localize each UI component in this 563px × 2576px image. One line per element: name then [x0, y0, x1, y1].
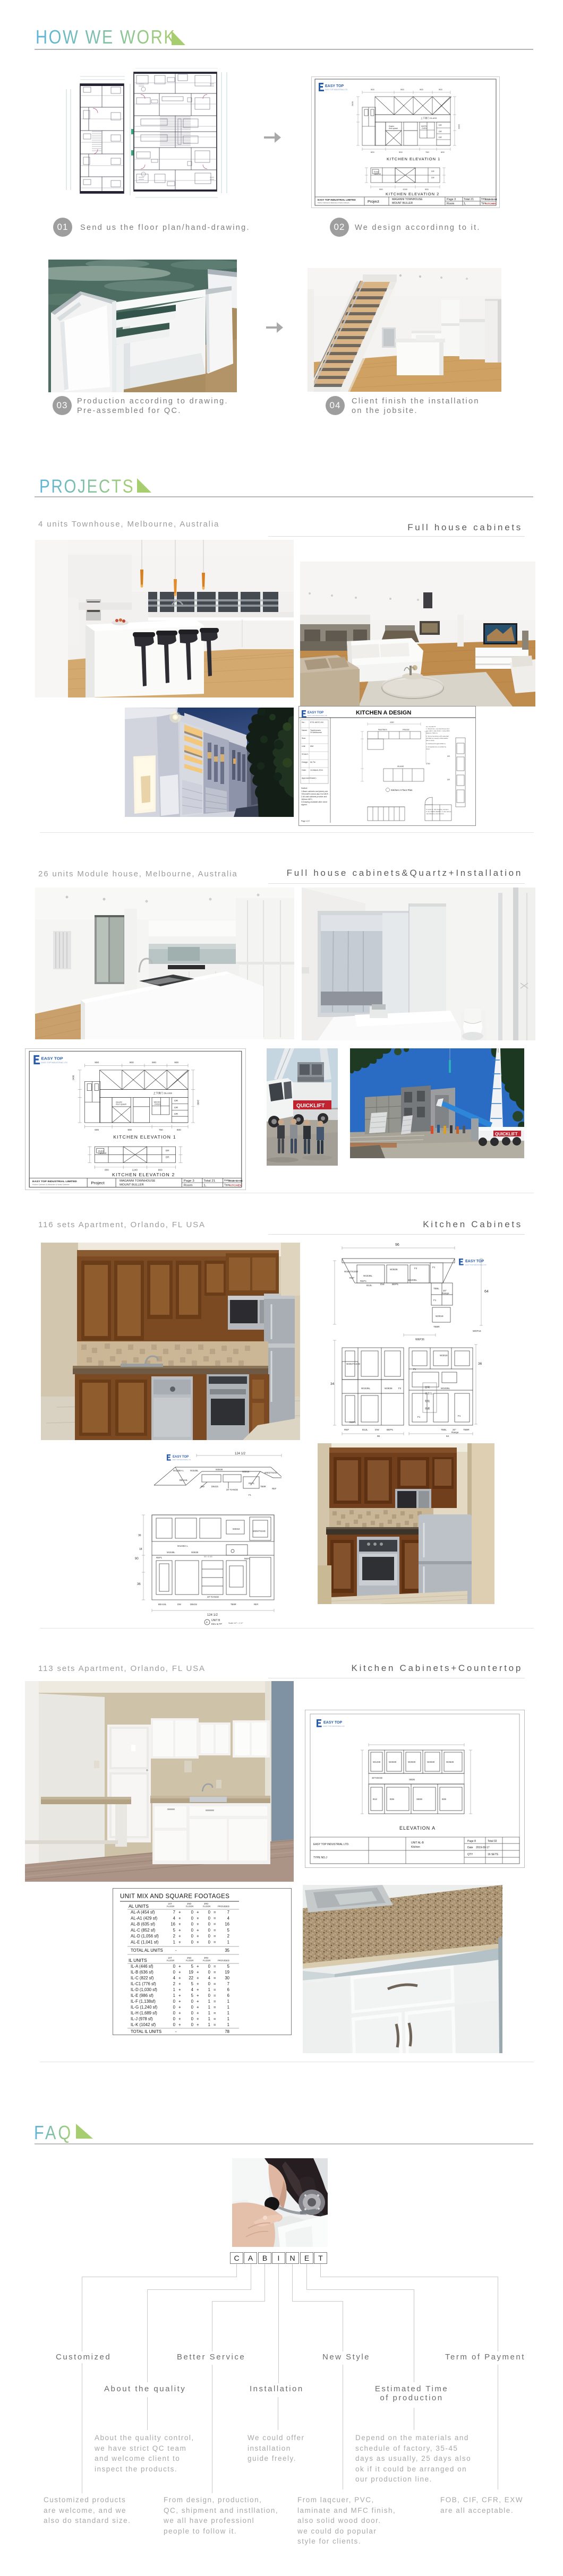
svg-text:client;: client; — [426, 748, 430, 750]
svg-text:TB9R: TB9R — [231, 1603, 236, 1606]
svg-text:4: 4 — [173, 1916, 176, 1920]
svg-text:SB36: SB36 — [416, 1798, 423, 1800]
svg-text:balance 740mm;: balance 740mm; — [426, 732, 438, 734]
svg-text:DR: DR — [439, 136, 442, 139]
svg-text:IL-B (636 sf): IL-B (636 sf) — [131, 1970, 153, 1975]
svg-text:=: = — [214, 1922, 216, 1927]
svg-text:14-March-2011: 14-March-2011 — [310, 769, 323, 771]
svg-text:+: + — [178, 1910, 181, 1915]
svg-text:EASY TOP INDUSTRIAL LTD: EASY TOP INDUSTRIAL LTD — [325, 89, 348, 91]
svg-text:124 1/2: 124 1/2 — [207, 1614, 218, 1617]
svg-text:760: 760 — [159, 1128, 163, 1131]
svg-text:DW: DW — [201, 1485, 204, 1488]
svg-text:124 1/2: 124 1/2 — [235, 1452, 246, 1455]
svg-text:ISLAND: ISLAND — [397, 765, 404, 768]
svg-text:18: 18 — [139, 1548, 142, 1551]
svg-text:Kitchen Cabinets & Wardrobe &: Kitchen Cabinets & Wardrobe & Vanity Cab… — [318, 202, 349, 204]
svg-text:W1536L: W1536L — [190, 1469, 199, 1472]
svg-text:900: 900 — [158, 1169, 163, 1171]
svg-text:19: 19 — [189, 1970, 193, 1975]
svg-text:Mr.Tie: Mr.Tie — [310, 761, 315, 763]
svg-text:1: 1 — [208, 1999, 210, 2004]
svg-text:1: 1 — [227, 1999, 229, 2004]
svg-text:+: + — [178, 1981, 181, 1986]
svg-text:W3018: W3018 — [440, 1354, 448, 1357]
svg-text:0: 0 — [191, 2017, 194, 2021]
svg-text:-: - — [175, 1948, 177, 1953]
svg-text:0: 0 — [191, 1940, 194, 1945]
svg-text:4300: 4300 — [390, 721, 394, 723]
svg-text:≡≡ -≡ ≡≡: ≡≡ -≡ ≡≡ — [204, 1555, 212, 1558]
svg-text:KITCHEN A DESIGN: KITCHEN A DESIGN — [356, 710, 411, 716]
svg-text:+: + — [178, 1934, 181, 1939]
svg-text:W1536L: W1536L — [363, 1274, 373, 1277]
svg-text:BEA24L: BEA24L — [180, 1479, 188, 1481]
svg-text:0: 0 — [191, 1910, 194, 1915]
svg-text:160mm MFC;: 160mm MFC; — [301, 798, 313, 800]
svg-text:另存为...: 另存为... — [425, 1392, 434, 1395]
svg-text:REP1: REP1 — [249, 1482, 255, 1485]
svg-text:900: 900 — [400, 88, 404, 91]
svg-text:MM: MM — [310, 745, 313, 747]
svg-text:0: 0 — [208, 1981, 211, 1986]
svg-text:30: 30 — [225, 1976, 229, 1980]
svg-text:Page 8: Page 8 — [467, 1840, 476, 1843]
svg-text:2019-09-17: 2019-09-17 — [476, 1846, 490, 1849]
svg-text:UNIT B: UNIT B — [211, 1619, 220, 1622]
svg-text:1240: 1240 — [403, 188, 408, 191]
svg-text:Page 3: Page 3 — [184, 1179, 195, 1183]
svg-text:16: 16 — [170, 1922, 175, 1927]
svg-text:0: 0 — [208, 1964, 211, 1969]
svg-text:IL-G (1,240 sf): IL-G (1,240 sf) — [131, 2005, 158, 2010]
svg-text:600: 600 — [371, 151, 374, 153]
svg-text:0: 0 — [208, 1993, 211, 1998]
svg-text:30"HOOD: 30"HOOD — [372, 1777, 383, 1779]
svg-text:W3636: W3636 — [191, 1551, 199, 1554]
svg-text:W3018: W3018 — [242, 1470, 250, 1473]
svg-text:上下滑门 GLASS: 上下滑门 GLASS — [421, 116, 437, 119]
svg-text:3.Drawing available after clie: 3.Drawing available after client — [301, 801, 327, 803]
svg-text:Kitchen A Floor Plan: Kitchen A Floor Plan — [391, 789, 413, 791]
svg-text:0: 0 — [208, 1928, 211, 1933]
svg-text:Page 3: Page 3 — [447, 198, 456, 201]
svg-text:+: + — [197, 1987, 199, 1992]
svg-text:Project: Project — [91, 1181, 105, 1186]
svg-text:1: 1 — [227, 2011, 229, 2015]
svg-text:0: 0 — [191, 2011, 194, 2015]
svg-text:W1836L: W1836L — [408, 1279, 417, 1281]
svg-text:Elev & FP: Elev & FP — [211, 1623, 222, 1625]
svg-text:Size:: Size: — [302, 737, 306, 739]
svg-text:4: 4 — [191, 1987, 194, 1992]
svg-text:Date: Date — [467, 1846, 473, 1849]
svg-text:EASY TOP INDUSTRIAL LIMITED: EASY TOP INDUSTRIAL LIMITED — [318, 199, 356, 201]
svg-text:W3030: W3030 — [389, 1761, 397, 1763]
svg-text:MAGANNI TOWNHOUSE: MAGANNI TOWNHOUSE — [392, 198, 423, 201]
svg-text:+: + — [178, 2017, 181, 2021]
svg-text:MOUNT BULLER: MOUNT BULLER — [120, 1184, 144, 1187]
svg-text:EASY TOP INDUSTRIAL LTD: EASY TOP INDUSTRIAL LTD — [465, 1264, 487, 1266]
svg-text:REP1: REP1 — [156, 1556, 163, 1559]
svg-text:next splash: next splash — [116, 1104, 126, 1106]
svg-text:20" RANGE: 20" RANGE — [226, 1488, 238, 1491]
svg-text:=: = — [214, 1970, 216, 1975]
svg-text:0: 0 — [208, 1940, 211, 1945]
svg-text:1: 1 — [208, 1987, 210, 1992]
svg-text:0: 0 — [208, 1916, 211, 1920]
svg-text:QUICKLIFT: QUICKLIFT — [495, 1132, 518, 1136]
svg-text:F2: F2 — [414, 1267, 417, 1270]
svg-text:+: + — [197, 1993, 199, 1998]
svg-text:1: 1 — [173, 1940, 175, 1945]
svg-text:BEP5: BEP5 — [392, 1283, 398, 1286]
svg-text:+: + — [178, 1928, 181, 1933]
svg-text:B12L: B12L — [362, 1428, 368, 1431]
svg-text:W1836L: W1836L — [441, 1387, 450, 1390]
svg-text:KITCHEN ELEVATION 1: KITCHEN ELEVATION 1 — [113, 1134, 176, 1140]
svg-text:Page 1/17: Page 1/17 — [301, 820, 310, 822]
svg-text:W3030: W3030 — [408, 1761, 416, 1763]
svg-text:KITCHEN: KITCHEN — [485, 202, 497, 205]
svg-text:+: + — [197, 1910, 199, 1915]
svg-text:FLOOR: FLOOR — [167, 1959, 174, 1962]
svg-text:=: = — [214, 1987, 216, 1992]
svg-text:REF.: REF. — [254, 1603, 259, 1606]
svg-text:900: 900 — [399, 151, 403, 153]
svg-text:=: = — [214, 1964, 216, 1969]
svg-text:64: 64 — [484, 1290, 489, 1294]
svg-text:5: 5 — [227, 1964, 230, 1969]
svg-text:Room: Room — [447, 202, 455, 205]
svg-text:PROVIDED: PROVIDED — [218, 1959, 229, 1962]
svg-text:96: 96 — [377, 1435, 380, 1437]
svg-text:F1: F1 — [458, 1415, 461, 1417]
svg-text:+: + — [178, 1940, 181, 1945]
svg-text:1: 1 — [227, 2017, 229, 2021]
svg-text:cabinet: cabinet — [98, 1152, 107, 1155]
svg-text:FRIDGE: FRIDGE — [403, 729, 410, 731]
svg-text:0: 0 — [173, 2005, 176, 2010]
svg-text:=: = — [214, 2017, 216, 2021]
svg-text:+: + — [197, 1999, 199, 2004]
svg-text:+: + — [197, 2022, 199, 2027]
svg-text:900: 900 — [105, 1169, 109, 1171]
svg-text:EASY TOP: EASY TOP — [173, 1455, 189, 1459]
svg-text:=: = — [214, 1934, 216, 1939]
svg-text:0: 0 — [208, 1910, 211, 1915]
svg-text:W1230: W1230 — [373, 1761, 381, 1763]
svg-text:DR: DR — [174, 1106, 178, 1109]
svg-text:EASY TOP INDUSTRIAL LTD: EASY TOP INDUSTRIAL LTD — [308, 714, 327, 717]
svg-text:=: = — [214, 1928, 216, 1933]
svg-text:Of Melbourne: Of Melbourne — [310, 731, 322, 734]
svg-text:PANTRIES: PANTRIES — [378, 729, 387, 731]
svg-text:Scale 1/2" = 1'-0": Scale 1/2" = 1'-0" — [228, 1622, 243, 1624]
svg-text:复制: 复制 — [425, 1385, 430, 1389]
svg-text:Name:: Name: — [302, 729, 308, 731]
svg-text:5: 5 — [191, 1981, 194, 1986]
svg-text:TB9L: TB9L — [433, 1287, 439, 1290]
svg-text:manufacture commences.: manufacture commences. — [426, 813, 445, 815]
svg-text:收藏: 收藏 — [425, 1407, 430, 1410]
svg-text:Kitchen: Kitchen — [411, 1846, 420, 1849]
svg-text:35: 35 — [225, 1948, 229, 1953]
svg-text:1240: 1240 — [132, 1169, 138, 1171]
svg-text:W3018: W3018 — [436, 1315, 443, 1317]
svg-text:+: + — [197, 1916, 199, 1920]
svg-text:EASY TOP: EASY TOP — [323, 1721, 342, 1725]
svg-text:1: 1 — [227, 1940, 229, 1945]
svg-text:=: = — [214, 2022, 216, 2027]
svg-text:DB415: DB415 — [190, 1603, 197, 1606]
svg-text:2400: 2400 — [72, 1075, 74, 1080]
svg-text:0: 0 — [191, 1999, 194, 2004]
svg-text:AL-A1 (429 sf): AL-A1 (429 sf) — [131, 1916, 158, 1920]
svg-text:F2: F2 — [398, 1387, 402, 1390]
svg-text:0: 0 — [208, 1970, 211, 1975]
svg-text:TYPE NO.J: TYPE NO.J — [313, 1856, 327, 1859]
svg-text:+: + — [178, 1922, 181, 1927]
svg-text:SB36: SB36 — [409, 1778, 415, 1781]
svg-text:F1: F1 — [432, 1266, 436, 1269]
svg-text:+: + — [197, 1928, 199, 1933]
svg-text:900: 900 — [127, 1128, 132, 1131]
svg-text:600: 600 — [441, 151, 445, 153]
svg-text:FLOOR: FLOOR — [186, 1959, 193, 1962]
svg-text:IL-D (1,030 sf): IL-D (1,030 sf) — [131, 1987, 157, 1992]
svg-text:=: = — [214, 2005, 216, 2010]
svg-text:=: = — [214, 1976, 216, 1980]
svg-text:ELEVATION A: ELEVATION A — [399, 1825, 436, 1831]
svg-text:2: 2 — [227, 1934, 229, 1939]
svg-text:Project: Project — [368, 200, 379, 204]
svg-text:EASY TOP INDUSTRIAL LTD: EASY TOP INDUSTRIAL LTD — [41, 1062, 67, 1064]
svg-text:900: 900 — [420, 88, 423, 91]
svg-text:20" RANGE: 20" RANGE — [207, 1596, 219, 1598]
svg-text:1,: 1, — [203, 1184, 207, 1187]
svg-text:+: + — [178, 2011, 181, 2015]
svg-text:Range: Range — [442, 1292, 449, 1295]
svg-text:900: 900 — [379, 188, 383, 191]
svg-text:Approved:: Approved: — [302, 777, 310, 779]
svg-text:FLOOR: FLOOR — [203, 1905, 210, 1908]
svg-text:1: 1 — [227, 2022, 229, 2027]
svg-text:+: + — [197, 1940, 199, 1945]
svg-text:TB9R: TB9R — [260, 1485, 266, 1488]
svg-text:TB9R: TB9R — [463, 1428, 470, 1431]
svg-text:F1: F1 — [249, 1494, 252, 1496]
svg-text:EASY TOP INDUSTRIAL LTD: EASY TOP INDUSTRIAL LTD — [323, 1725, 345, 1727]
svg-text:Kitchen Cabinets & Wardrobe &: Kitchen Cabinets & Wardrobe & Vanity Cab… — [32, 1183, 70, 1185]
svg-text:5: 5 — [227, 1928, 230, 1933]
svg-text:+: + — [178, 2005, 181, 2010]
svg-text:1: 1 — [173, 1987, 175, 1992]
svg-text:0: 0 — [191, 2022, 194, 2027]
svg-text:0: 0 — [173, 2011, 176, 2015]
svg-text:=: = — [214, 1999, 216, 2004]
svg-text:4: 4 — [173, 1976, 176, 1980]
svg-text:B36: B36 — [390, 1798, 395, 1800]
svg-text:+: + — [178, 1970, 181, 1975]
svg-text:WDF16: WDF16 — [473, 1330, 481, 1332]
svg-text:ETD-1607C-KK: ETD-1607C-KK — [310, 721, 324, 723]
svg-text:Room: Room — [184, 1184, 193, 1187]
svg-text:=: = — [214, 1993, 216, 1998]
svg-text:SCALE:: SCALE: — [302, 753, 309, 755]
svg-text:6: 6 — [227, 1987, 229, 1992]
svg-text:36: 36 — [137, 1583, 141, 1586]
svg-text:KITCHEN ELEVATION 1: KITCHEN ELEVATION 1 — [387, 157, 440, 161]
svg-text:DR: DR — [166, 1149, 170, 1152]
svg-text:TOTAL IL UNITS: TOTAL IL UNITS — [131, 2029, 161, 2034]
svg-text:=: = — [214, 1910, 216, 1915]
svg-text:64: 64 — [446, 1435, 449, 1437]
svg-text:KITCHEN: KITCHEN — [229, 1184, 242, 1187]
svg-text:+: + — [197, 1970, 199, 1975]
svg-text:5: 5 — [191, 1993, 194, 1998]
svg-text:0: 0 — [191, 1928, 194, 1933]
svg-text:OVEN: OVEN — [422, 127, 427, 130]
svg-text:B36: B36 — [442, 1798, 447, 1800]
svg-text:next splash: next splash — [389, 127, 398, 130]
svg-text:+: + — [197, 1934, 199, 1939]
svg-text:DR: DR — [174, 1113, 178, 1115]
svg-text:UNIT AL-B: UNIT AL-B — [411, 1841, 424, 1845]
svg-text:0: 0 — [191, 1934, 194, 1939]
svg-text:cabinet: cabinet — [374, 173, 381, 175]
svg-text:W3630: W3630 — [446, 1761, 454, 1763]
svg-text:上下滑门 GLASS: 上下滑门 GLASS — [153, 1091, 172, 1095]
svg-text:EASY TOP INDUSTRIAL LIMITED: EASY TOP INDUSTRIAL LIMITED — [32, 1180, 77, 1183]
svg-text:0: 0 — [208, 1922, 211, 1927]
svg-text:OVEN: OVEN — [155, 1104, 161, 1106]
svg-text:REP1: REP1 — [244, 1557, 251, 1560]
svg-text:REF: REF — [344, 1428, 349, 1431]
svg-text:W3027X24D: W3027X24D — [346, 1363, 361, 1365]
svg-text:EASY TOP: EASY TOP — [41, 1056, 63, 1061]
svg-text:900: 900 — [130, 1061, 134, 1064]
svg-text:19: 19 — [225, 1970, 229, 1975]
svg-text:Total 21: Total 21 — [464, 198, 474, 201]
svg-text:2400: 2400 — [458, 124, 460, 130]
svg-text:IL-F (1,138sf): IL-F (1,138sf) — [131, 1999, 156, 2004]
svg-text:1.Base cabinets and joinery ar: 1.Base cabinets and joinery are — [301, 790, 328, 792]
svg-text:FLOOR: FLOOR — [167, 1905, 174, 1908]
svg-text:EASY TOP: EASY TOP — [325, 84, 344, 88]
svg-text:W1536L: W1536L — [167, 1551, 175, 1554]
svg-text:+: + — [197, 2005, 199, 2010]
svg-text:-: - — [175, 2029, 177, 2034]
svg-text:AL-D (1,056 sf): AL-D (1,056 sf) — [131, 1934, 159, 1939]
svg-text:AL-A (454 sf): AL-A (454 sf) — [131, 1910, 155, 1915]
svg-text:+: + — [197, 2017, 199, 2021]
svg-text:EASY TOP INDUSTRIAL LTD.: EASY TOP INDUSTRIAL LTD. — [313, 1843, 349, 1846]
svg-text:W3636: W3636 — [390, 1268, 398, 1271]
svg-text:+: + — [178, 1999, 181, 2004]
svg-text:40mm thick:: 40mm thick: — [426, 739, 434, 742]
svg-text:AL UNITS: AL UNITS — [129, 1903, 149, 1909]
svg-text:F1: F1 — [417, 1416, 421, 1418]
svg-text:MAGANNI TOWNHOUSE: MAGANNI TOWNHOUSE — [120, 1179, 156, 1183]
svg-text:DR: DR — [431, 176, 434, 179]
svg-text:W3027X24D: W3027X24D — [265, 1471, 277, 1474]
svg-text:=: = — [214, 1981, 216, 1986]
svg-text:David L: David L — [310, 777, 317, 779]
svg-text:2400: 2400 — [351, 101, 354, 106]
svg-text:DW: DW — [177, 1603, 181, 1606]
svg-text:2: 2 — [173, 1934, 175, 1939]
svg-text:W3636: W3636 — [385, 1387, 393, 1390]
svg-text:AL-E (1,041 sf): AL-E (1,041 sf) — [131, 1940, 159, 1945]
svg-text:Date:: Date: — [302, 769, 306, 771]
svg-text:DB415: DB415 — [211, 1485, 218, 1488]
svg-text:DR: DR — [166, 1156, 170, 1159]
svg-text:W1536L: W1536L — [361, 1387, 371, 1390]
svg-text:36: 36 — [138, 1534, 141, 1537]
svg-text:=: = — [214, 2011, 216, 2015]
svg-text:TOTAL AL UNITS: TOTAL AL UNITS — [131, 1948, 163, 1953]
svg-text:TB9R: TB9R — [433, 1325, 440, 1328]
svg-text:Range: Range — [451, 1431, 459, 1434]
svg-text:1: 1 — [208, 2017, 210, 2021]
svg-text:KITCHEN ELEVATION 2: KITCHEN ELEVATION 2 — [386, 192, 439, 196]
svg-text:900: 900 — [425, 188, 429, 191]
svg-text:Notice:: Notice: — [301, 787, 308, 789]
svg-text:FLOOR: FLOOR — [186, 1905, 193, 1908]
svg-text:1: 1 — [208, 2011, 210, 2015]
svg-text:+: + — [178, 1987, 181, 1992]
svg-text:16: 16 — [225, 1922, 229, 1927]
svg-text:REF: REF — [349, 1277, 354, 1279]
svg-text:=: = — [214, 1940, 216, 1945]
svg-text:IL-E (986 sf): IL-E (986 sf) — [131, 1993, 153, 1998]
svg-text:900: 900 — [174, 1061, 178, 1064]
svg-text:PROVIDED: PROVIDED — [218, 1905, 229, 1908]
svg-text:900: 900 — [371, 88, 374, 91]
svg-text:+: + — [178, 1964, 181, 1969]
svg-text:1,: 1, — [464, 202, 466, 205]
svg-text:Quartz: Quartz — [116, 1101, 122, 1103]
svg-text:=: = — [214, 1916, 216, 1920]
svg-text:4: 4 — [227, 1916, 230, 1920]
svg-text:0: 0 — [191, 1916, 194, 1920]
svg-text:QUICKLIFT: QUICKLIFT — [296, 1103, 325, 1109]
svg-text:+: + — [178, 1916, 181, 1920]
svg-text:IL-C1 (776 sf): IL-C1 (776 sf) — [131, 1981, 156, 1986]
svg-text:P: P — [206, 1621, 208, 1624]
svg-text:1: 1 — [208, 2005, 210, 2010]
svg-text:粘贴: 粘贴 — [425, 1399, 430, 1403]
svg-text:W3027X24D: W3027X24D — [344, 1270, 359, 1273]
svg-text:DW: DW — [375, 1428, 379, 1431]
svg-text:DW: DW — [380, 1283, 385, 1286]
svg-text:DR: DR — [431, 170, 434, 173]
svg-text:Unit:: Unit: — [302, 745, 305, 747]
svg-text:+: + — [197, 1981, 199, 1986]
svg-text:34: 34 — [330, 1382, 335, 1386]
svg-text:FLOOR: FLOOR — [203, 1959, 210, 1962]
svg-text:MOUNT BULLER: MOUNT BULLER — [392, 202, 413, 205]
svg-text:+: + — [197, 1964, 199, 1969]
svg-text:AL-B (635 sf): AL-B (635 sf) — [131, 1922, 155, 1927]
svg-text:7: 7 — [173, 1910, 175, 1915]
svg-text:0: 0 — [173, 1970, 176, 1975]
svg-text:1: 1 — [173, 1993, 175, 1998]
svg-text:EASY TOP INDUSTRIAL LTD: EASY TOP INDUSTRIAL LTD — [173, 1459, 191, 1461]
svg-text:DR: DR — [439, 124, 442, 126]
svg-text:+: + — [178, 1976, 181, 1980]
